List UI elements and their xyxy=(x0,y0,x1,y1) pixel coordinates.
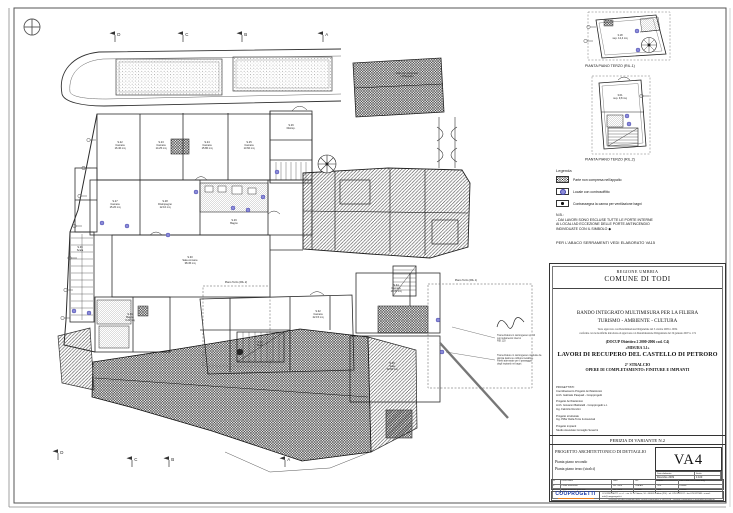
section-marker-flag-icon xyxy=(110,31,116,35)
section-marker-flag-icon xyxy=(318,31,324,35)
project-title: LAVORI DI RECUPERO DEL CASTELLO DI PETRO… xyxy=(550,352,725,358)
ceiling-marker-icon xyxy=(231,206,235,210)
main-building xyxy=(64,106,312,352)
section-marker-label: A xyxy=(287,457,290,462)
section-marker-label: A xyxy=(325,32,328,37)
ceiling-marker-icon xyxy=(436,318,440,322)
ceiling-marker-icon xyxy=(166,233,170,237)
ceiling-marker-icon xyxy=(125,224,129,228)
program-title: TURISMO - AMBIENTE - CULTURA xyxy=(550,319,725,324)
mini-plan-1-label: PIANTA PIANO TERZO (RIL.1) xyxy=(585,64,635,68)
title-block: REGIONE UMBRIA COMUNE DI TODI BANDO INTE… xyxy=(549,263,726,502)
section-marker-label: D xyxy=(117,32,120,37)
mini-plan-terzo-ril2 xyxy=(592,76,650,154)
misura-label: «MISURA 3.1» xyxy=(550,346,725,350)
plan-text-label: S.32Camera22.15 mq xyxy=(313,309,324,319)
blue-dot-swatch-icon xyxy=(556,188,569,195)
ceiling-marker-icon xyxy=(72,309,76,313)
plan-text-label: S.27Camera15.20 mq xyxy=(110,199,121,209)
section-marker-flag-icon xyxy=(53,449,59,453)
legend-item: Contrassegna la canna per ventilazione b… xyxy=(556,200,692,207)
window-mark-icon xyxy=(587,25,590,28)
ceiling-marker-icon xyxy=(100,221,104,225)
drawing-sheet: PIANTA PIANO TERZO (RIL.1) PIANTA PIANO … xyxy=(0,0,733,513)
section-marker-flag-icon xyxy=(164,456,170,460)
window-mark-icon xyxy=(73,224,76,227)
legend-item: Parte non compresa nell'appalto xyxy=(556,176,692,183)
perizia-banner: PERIZIA DI VARIANTE N.2 xyxy=(550,435,725,445)
legend-footer: PER L'ABACO SERRAMENTI VEDI ELABORATO VA… xyxy=(556,241,692,245)
opere-label: OPERE DI COMPLETAMENTO: FINITURE E IMPIA… xyxy=(550,367,725,372)
program-title: BANDO INTEGRATO MULTIMISURA PER LA FILIE… xyxy=(550,311,725,316)
plan-text-label: S.34Camera19.30 mq xyxy=(391,283,402,293)
logo-bar xyxy=(558,498,594,500)
logo-text: COOPROGETTI xyxy=(555,492,595,497)
window-mark-icon xyxy=(64,288,67,291)
plan-text-label: Piano Terzo (RIL.1) xyxy=(455,278,477,282)
ceiling-marker-icon xyxy=(627,122,631,126)
divider xyxy=(553,288,722,289)
legend-item: Locale con controsoffitto xyxy=(556,188,692,195)
ceiling-marker-icon xyxy=(636,48,640,52)
ceiling-marker-icon xyxy=(194,190,198,194)
ceiling-marker-icon xyxy=(440,350,444,354)
municipality-label: COMUNE DI TODI xyxy=(550,275,725,283)
drawing-content-line: Pianta piano terzo (stralci) xyxy=(555,467,595,471)
plan-text-label: S.25Camera13.60 mq xyxy=(244,140,255,150)
legend-item-label: Contrassegna la canna per ventilazione b… xyxy=(573,202,642,206)
docup-label: (DOCUP Obiettivo 2 2000-2006 cod. C4) xyxy=(550,340,725,344)
ceiling-marker-icon xyxy=(625,114,629,118)
ceiling-marker-icon xyxy=(261,195,265,199)
window-mark-icon xyxy=(87,138,90,141)
spiral-stair xyxy=(318,155,336,173)
legend-item-label: Locale con controsoffitto xyxy=(573,190,610,194)
section-marker-flag-icon xyxy=(280,456,286,460)
ceiling-marker-icon xyxy=(635,29,639,33)
hatch-swatch-icon xyxy=(556,176,569,183)
plan-text-label: S.26Disimp. xyxy=(287,123,296,130)
plan-text-label: S.23Camera14.25 mq xyxy=(156,140,167,150)
plan-text-label: S.24Camera15.80 mq xyxy=(202,140,213,150)
mini-plan-terzo-ril1 xyxy=(588,12,670,60)
black-dot-swatch-icon xyxy=(556,200,569,207)
mini-plan-2-label: PIANTA PIANO TERZO (RIL.2) xyxy=(585,158,635,162)
section-marker-flag-icon xyxy=(237,31,243,35)
window-mark-icon xyxy=(68,256,71,259)
excluded-roof xyxy=(353,58,444,117)
company-info: COOPROGETTI s.c.r.l. - via G. Di Vittori… xyxy=(600,492,723,501)
legend-note: N.B.: - DAI LAVORI SONO ESCLUSE TUTTE LE… xyxy=(556,213,692,232)
excluded-area-central xyxy=(303,155,470,258)
region-label: REGIONE UMBRIA xyxy=(550,269,725,274)
plan-text-label: S.22Camera16.40 mq xyxy=(115,140,126,150)
section-marker-label: C xyxy=(185,32,188,37)
plan-text-label: S.29Bagno xyxy=(230,218,238,225)
window-mark-icon xyxy=(584,39,587,42)
ceiling-marker-icon xyxy=(275,170,279,174)
company-logo: COOPROGETTI xyxy=(552,492,600,501)
revision-table: N. Descrizione Data Dis. Contr. File: 73… xyxy=(551,479,724,490)
courtyard-terraces xyxy=(61,49,341,106)
credits-block: PROGETTISTI: Coordinamento Progetto Arch… xyxy=(556,386,608,433)
legend: Legenda Parte non compresa nell'appalto … xyxy=(556,168,692,245)
company-row: COOPROGETTI COOPROGETTI s.c.r.l. - via G… xyxy=(551,491,724,502)
program-note: conforme con le modifiche introdotte ed … xyxy=(550,332,725,335)
section-marker-label: D xyxy=(60,450,63,455)
plan-text-label: S.31Bagno6.20 mq xyxy=(125,312,135,322)
plan-text-label: Tramezzatura in cartongesso sp. 10con is… xyxy=(497,334,536,343)
plan-text-label: Piano Terzo (RIL.2) xyxy=(225,280,247,284)
section-marker-label: B xyxy=(244,32,247,37)
sheet-code-badge: VA4 xyxy=(655,447,722,471)
plan-text-label: S.28Disimpegno12.10 mq xyxy=(158,199,172,209)
north-compass-icon xyxy=(24,19,40,35)
ceiling-marker-icon xyxy=(87,311,91,315)
gate-walls xyxy=(437,117,457,168)
plan-text-label: S.36Scala xyxy=(77,245,84,252)
drawing-content-line: Pianta piano secondo xyxy=(555,460,587,464)
window-mark-icon xyxy=(61,316,64,319)
plan-text-label: S.30Sala comune38.45 mq xyxy=(182,255,198,265)
ceiling-marker-icon xyxy=(246,208,250,212)
section-marker-flag-icon xyxy=(127,456,133,460)
drawing-type-label: PROGETTO ARCHITETTONICO DI DETTAGLIO xyxy=(555,449,646,454)
section-marker-label: B xyxy=(171,457,174,462)
plan-text-label: Tramezzature in cartongesso costituite d… xyxy=(497,354,542,365)
section-marker-label: C xyxy=(134,457,137,462)
legend-title: Legenda xyxy=(556,168,692,173)
section-marker-flag-icon xyxy=(178,31,184,35)
legend-item-label: Parte non compresa nell'appalto xyxy=(573,178,622,182)
